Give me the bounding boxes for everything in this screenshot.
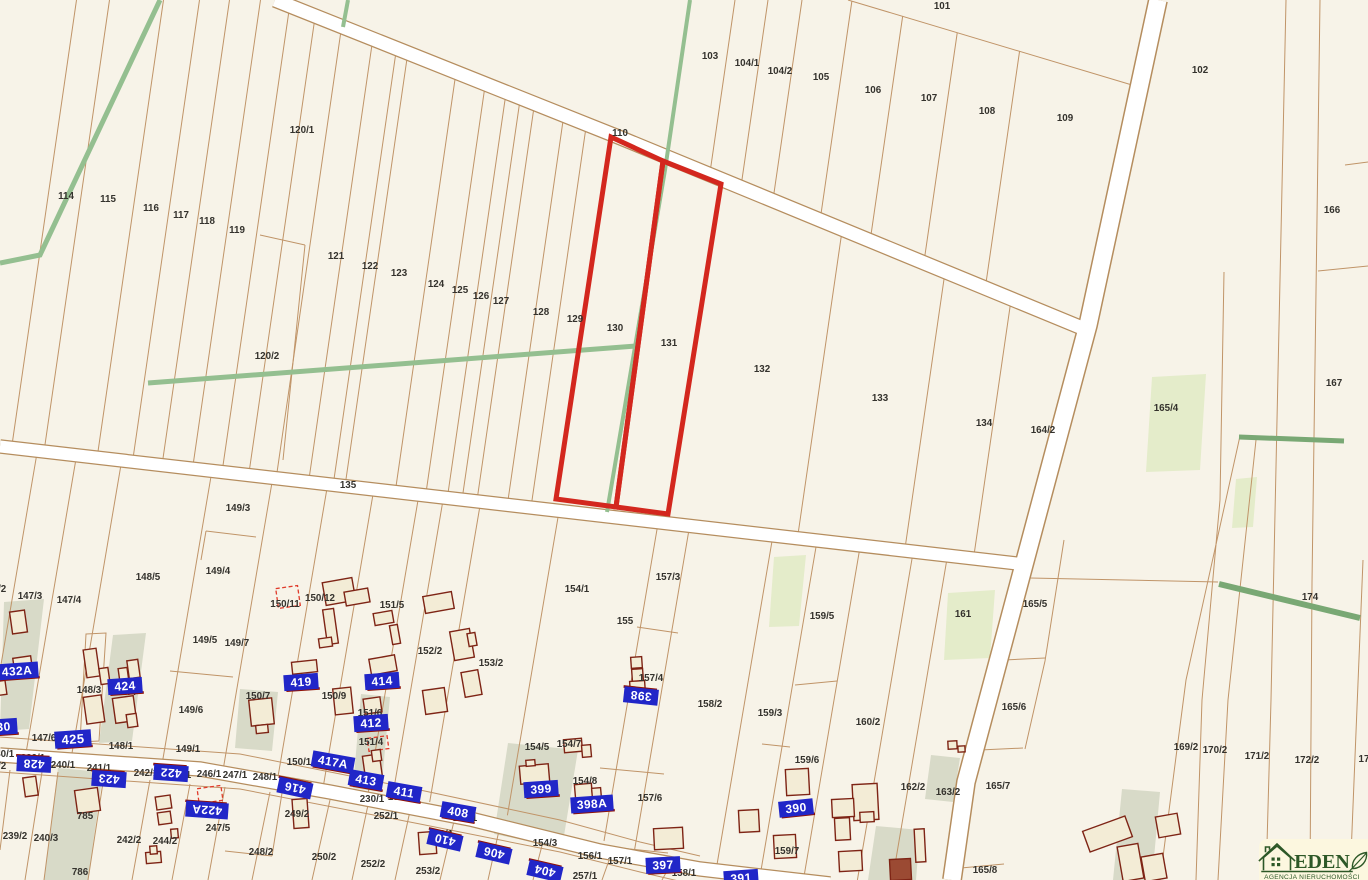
svg-text:102: 102 [1192, 65, 1209, 76]
svg-text:422A: 422A [191, 802, 222, 818]
svg-text:252/2: 252/2 [361, 859, 386, 870]
svg-text:152/2: 152/2 [418, 646, 443, 657]
svg-text:171/2: 171/2 [1245, 751, 1270, 762]
svg-text:161: 161 [955, 609, 972, 620]
svg-text:104/1: 104/1 [735, 58, 760, 69]
svg-text:134: 134 [976, 418, 993, 429]
svg-text:148/5: 148/5 [136, 572, 161, 583]
svg-text:169/2: 169/2 [1174, 742, 1199, 753]
svg-text:154/8: 154/8 [573, 776, 598, 787]
svg-text:399: 399 [530, 781, 552, 796]
svg-text:103: 103 [702, 51, 719, 62]
svg-text:151/5: 151/5 [380, 600, 405, 611]
svg-text:159/6: 159/6 [795, 755, 820, 766]
svg-text:150/11: 150/11 [270, 599, 300, 610]
svg-text:149/7: 149/7 [225, 638, 250, 649]
svg-text:119: 119 [229, 225, 245, 236]
svg-text:135: 135 [340, 480, 357, 491]
svg-text:114: 114 [58, 191, 74, 202]
svg-text:124: 124 [428, 279, 445, 290]
svg-text:239/2: 239/2 [3, 831, 28, 842]
svg-text:390: 390 [785, 800, 808, 816]
svg-text:247/5: 247/5 [206, 823, 231, 834]
svg-text:165/6: 165/6 [1002, 702, 1027, 713]
svg-text:250/2: 250/2 [312, 852, 337, 863]
svg-text:423: 423 [98, 771, 120, 786]
svg-text:117: 117 [173, 210, 189, 221]
svg-text:398A: 398A [576, 796, 607, 812]
svg-text:116: 116 [143, 203, 159, 214]
svg-text:133: 133 [872, 393, 889, 404]
svg-text:149/3: 149/3 [226, 503, 251, 514]
svg-text:132: 132 [754, 364, 771, 375]
svg-text:257/1: 257/1 [573, 871, 598, 880]
svg-text:162/2: 162/2 [901, 782, 926, 793]
svg-text:419: 419 [290, 674, 312, 689]
svg-text:248/2: 248/2 [249, 847, 274, 858]
svg-text:242/2: 242/2 [117, 835, 142, 846]
svg-text:785: 785 [77, 811, 94, 822]
svg-text:248/1: 248/1 [253, 772, 278, 783]
svg-text:174: 174 [1302, 592, 1319, 603]
svg-text:154/1: 154/1 [565, 584, 590, 595]
svg-text:246/1: 246/1 [197, 769, 222, 780]
svg-text:147/6: 147/6 [32, 733, 57, 744]
svg-text:115: 115 [100, 194, 116, 205]
svg-text:428: 428 [23, 756, 45, 771]
svg-text:159/7: 159/7 [775, 846, 800, 857]
svg-text:247/1: 247/1 [223, 770, 248, 781]
svg-text:240/2: 240/2 [0, 761, 7, 772]
svg-text:157/3: 157/3 [656, 572, 681, 583]
svg-text:398: 398 [630, 688, 653, 704]
svg-text:120/1: 120/1 [290, 125, 315, 136]
svg-text:249/2: 249/2 [285, 809, 310, 820]
svg-text:159/5: 159/5 [810, 611, 835, 622]
svg-text:253/2: 253/2 [416, 866, 441, 877]
svg-text:158/2: 158/2 [698, 699, 723, 710]
svg-text:240/1: 240/1 [0, 749, 15, 760]
svg-text:105: 105 [813, 72, 830, 83]
svg-text:121: 121 [328, 251, 345, 262]
svg-text:786: 786 [72, 867, 89, 878]
svg-text:150/1: 150/1 [287, 757, 312, 768]
svg-text:104/2: 104/2 [768, 66, 793, 77]
svg-text:230/1: 230/1 [360, 794, 385, 805]
svg-text:130: 130 [607, 323, 624, 334]
svg-text:147/4: 147/4 [57, 595, 82, 606]
svg-text:149/4: 149/4 [206, 566, 231, 577]
svg-text:122: 122 [362, 261, 379, 272]
svg-text:131: 131 [661, 338, 678, 349]
svg-text:240/3: 240/3 [34, 833, 59, 844]
svg-text:148/1: 148/1 [109, 741, 134, 752]
svg-text:154/3: 154/3 [533, 838, 558, 849]
svg-text:125: 125 [452, 285, 469, 296]
svg-text:167: 167 [1326, 378, 1343, 389]
svg-text:154/7: 154/7 [557, 739, 582, 750]
svg-text:149/5: 149/5 [193, 635, 218, 646]
svg-text:106: 106 [865, 85, 882, 96]
svg-text:128: 128 [533, 307, 550, 318]
svg-text:156/1: 156/1 [578, 851, 603, 862]
svg-text:157/4: 157/4 [639, 673, 664, 684]
svg-text:165/8: 165/8 [973, 865, 998, 876]
svg-text:151/4: 151/4 [359, 737, 384, 748]
svg-text:110: 110 [612, 128, 628, 139]
svg-text:EDEN: EDEN [1294, 851, 1350, 873]
svg-text:150/12: 150/12 [305, 593, 336, 604]
svg-text:148/3: 148/3 [77, 685, 102, 696]
svg-text:165/5: 165/5 [1023, 599, 1048, 610]
svg-text:244/2: 244/2 [153, 836, 178, 847]
svg-text:155: 155 [617, 616, 634, 627]
svg-text:108: 108 [979, 106, 996, 117]
svg-text:153/2: 153/2 [479, 658, 504, 669]
svg-text:170/2: 170/2 [1203, 745, 1228, 756]
svg-text:150/7: 150/7 [246, 691, 271, 702]
svg-text:432A: 432A [1, 663, 32, 679]
svg-text:157/1: 157/1 [608, 856, 633, 867]
svg-text:146/2: 146/2 [0, 584, 7, 595]
svg-text:414: 414 [371, 673, 393, 688]
svg-text:AGENCJA NIERUCHOMOŚCI: AGENCJA NIERUCHOMOŚCI [1264, 872, 1360, 880]
svg-text:149/1: 149/1 [176, 744, 201, 755]
svg-text:252/1: 252/1 [374, 811, 399, 822]
svg-text:172/2: 172/2 [1295, 755, 1320, 766]
svg-text:150/9: 150/9 [322, 691, 347, 702]
svg-text:109: 109 [1057, 113, 1074, 124]
svg-text:17: 17 [1359, 754, 1368, 765]
svg-text:107: 107 [921, 93, 938, 104]
svg-text:123: 123 [391, 268, 408, 279]
svg-text:240/1: 240/1 [51, 760, 76, 771]
svg-text:120/2: 120/2 [255, 351, 280, 362]
svg-text:118: 118 [199, 216, 215, 227]
svg-text:127: 127 [493, 296, 510, 307]
svg-text:157/6: 157/6 [638, 793, 663, 804]
svg-text:149/6: 149/6 [179, 705, 204, 716]
svg-text:159/3: 159/3 [758, 708, 783, 719]
svg-text:147/3: 147/3 [18, 591, 43, 602]
svg-text:126: 126 [473, 291, 490, 302]
svg-text:412: 412 [360, 715, 382, 730]
svg-text:164/2: 164/2 [1031, 425, 1056, 436]
svg-text:165/4: 165/4 [1154, 403, 1179, 414]
svg-text:391: 391 [730, 870, 752, 880]
svg-text:160/2: 160/2 [856, 717, 881, 728]
svg-text:397: 397 [652, 858, 674, 873]
svg-text:165/7: 165/7 [986, 781, 1011, 792]
svg-text:154/5: 154/5 [525, 742, 550, 753]
svg-text:101: 101 [934, 1, 951, 12]
svg-text:129: 129 [567, 314, 584, 325]
svg-text:425: 425 [61, 731, 85, 748]
svg-text:422: 422 [160, 765, 182, 780]
svg-text:163/2: 163/2 [936, 787, 961, 798]
svg-text:424: 424 [114, 678, 136, 693]
svg-text:430: 430 [0, 719, 11, 734]
svg-text:166: 166 [1324, 205, 1341, 216]
